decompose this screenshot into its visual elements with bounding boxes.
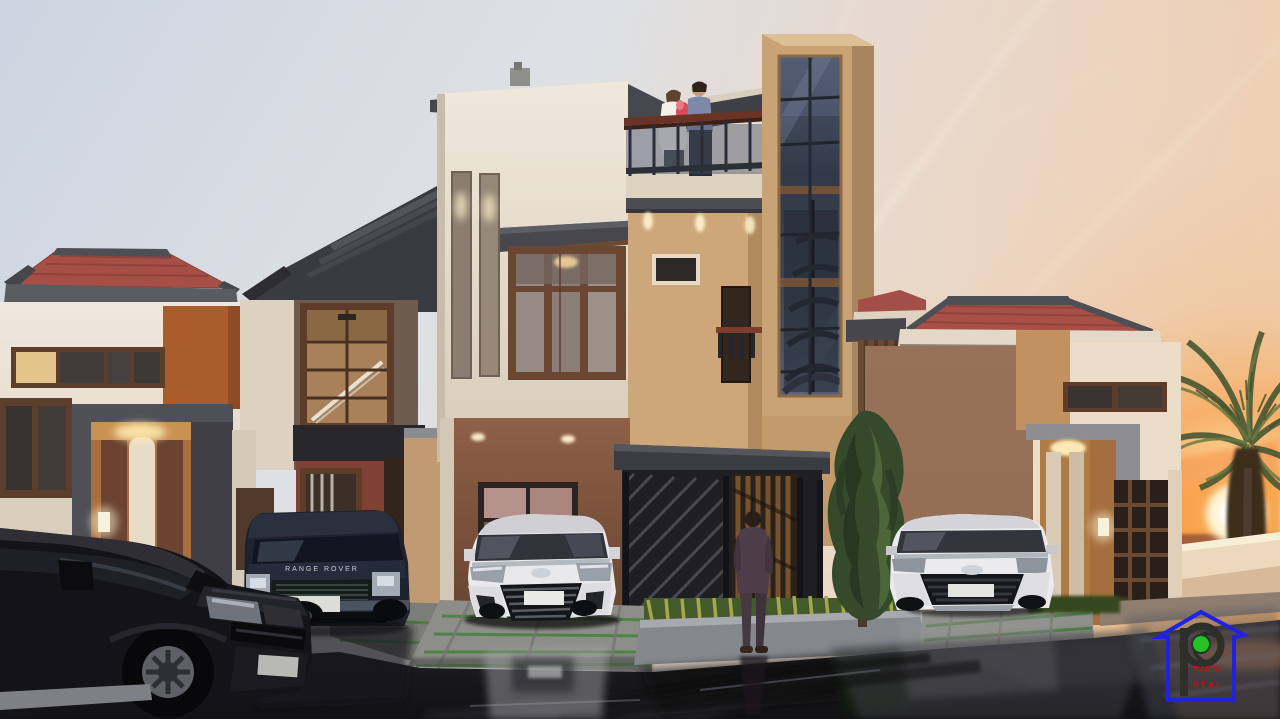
svg-text:R E A L: R E A L bbox=[1193, 681, 1221, 690]
svg-text:RANGE ROVER: RANGE ROVER bbox=[285, 566, 359, 573]
svg-text:RAFFA: RAFFA bbox=[1194, 665, 1221, 674]
